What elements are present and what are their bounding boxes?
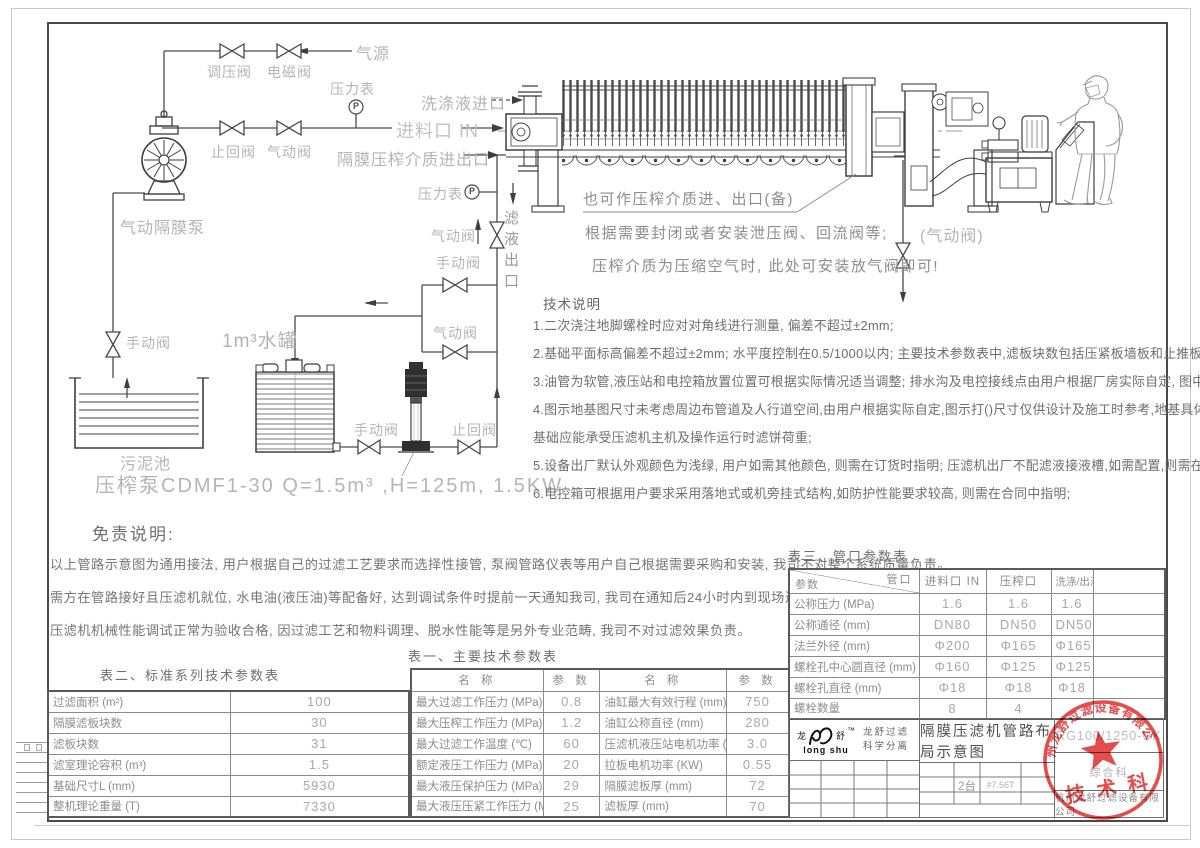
- brand-line1: 龙舒过滤: [863, 726, 909, 740]
- check-valve-bottom-icon: [458, 440, 480, 454]
- table-row: 公称通径 (mm)DN80DN50DN50: [789, 614, 1165, 635]
- tech-note-line: 5.设备出厂默认外观颜色为浅绿, 用户如需其他颜色, 则需在订货时指明; 压滤机…: [533, 452, 1178, 480]
- pneumatic-valve1-label: 气动阀: [267, 142, 312, 162]
- pressure-gauge2-label: 压力表: [418, 184, 463, 204]
- manual-valve-branch-label: 手动阀: [436, 253, 481, 273]
- table3-header: 压榨口: [986, 569, 1051, 593]
- company-logo: 龙 舒 ™ long shu: [797, 725, 855, 755]
- regulator-valve-icon: [220, 44, 244, 58]
- table3-header: 进料口 IN: [919, 569, 986, 593]
- water-tank-label: 1m³水罐: [222, 326, 298, 353]
- disclaimer-line: 以上管路示意图为通用接法, 用户根据自己的过滤工艺要求而选择性接管, 泵阀管路仪…: [50, 548, 790, 581]
- disclaimer-line: 压滤机机械性能调试正常为验收合格, 因过滤工艺和物料调理、脱水性能等是另外专业范…: [50, 614, 790, 647]
- diaphragm-pump-label: 气动隔膜泵: [120, 214, 205, 238]
- solenoid-valve-icon: [277, 44, 301, 58]
- pneumatic-valve-right-label: (气动阀): [920, 222, 984, 246]
- table-row: 滤室理论容积 (m³)1.5: [48, 754, 409, 775]
- stamp-center-text: 技 术 科: [1064, 769, 1153, 808]
- pressure-gauge1-label: 压力表: [330, 79, 375, 99]
- quantity-value: 2台: [954, 778, 980, 794]
- logo-trademark: ™: [847, 726, 855, 735]
- tech-notes: 1.二次浇注地脚螺栓时应对对角线进行测量, 偏差不超过±2mm;2.基础平面标高…: [533, 312, 1178, 508]
- table3-header: [1093, 569, 1165, 593]
- table-row: 公称压力 (MPa)1.61.61.6: [789, 593, 1165, 614]
- table1-header: 名 称: [600, 669, 727, 691]
- tech-note-line: 4.图示地基图尺寸未考虑周边布管道及人行道空间,由用户根据实际自定,图示打()尺…: [533, 396, 1178, 424]
- water-tank-icon: [256, 360, 340, 452]
- callout-alt-port: 也可作压榨介质进、出口(备): [583, 188, 794, 209]
- feed-inlet-label: 进料口 IN: [396, 117, 479, 143]
- table3-corner-cell: 管口 参数: [789, 569, 919, 593]
- table-row: 最大过滤工作温度 (℃)60压滤机液压站电机功率 (KW)3.0: [411, 733, 789, 754]
- table-row: 螺栓孔中心圆直径 (mm)Φ160Φ125Φ125: [789, 656, 1165, 677]
- logo-glyph-icon: [808, 725, 834, 747]
- table-row: 基础尺寸L (mm)5930: [48, 775, 409, 796]
- check-valve1-label: 止回阀: [211, 142, 256, 162]
- corner-top-label: 管口: [887, 571, 913, 587]
- table2-title: 表二、标准系列技术参数表: [100, 665, 280, 684]
- gauge-p-symbol: P: [465, 186, 479, 196]
- table-row: 最大过滤工作压力 (MPa)0.8油缸最大有效行程 (mm)750: [411, 691, 789, 712]
- main-params-table: 名 称 参 数 名 称 参 数 最大过滤工作压力 (MPa)0.8油缸最大有效行…: [410, 668, 790, 818]
- table-row: 最大液压压紧工作压力 (MPa)25滤板厚 (mm)70: [411, 796, 789, 817]
- tech-note-line: 基础应能承受压滤机主机及操作运行时滤饼荷重;: [533, 424, 1178, 452]
- membrane-port-label: 隔膜压榨介质进出口: [337, 146, 490, 170]
- table-row: 最大液压保护压力 (MPa)29隔膜滤板厚 (mm)72: [411, 775, 789, 796]
- press-pump-icon: [398, 362, 434, 476]
- filtrate-outlet-label: 滤液出口: [500, 210, 521, 310]
- logo-english: long shu: [797, 745, 855, 755]
- tech-note-line: 1.二次浇注地脚螺栓时应对对角线进行测量, 偏差不超过±2mm;: [533, 312, 1178, 340]
- regulator-valve-label: 调压阀: [207, 62, 252, 82]
- table-row: 滤板块数31: [48, 733, 409, 754]
- pneumatic-valve-icon: [277, 121, 301, 135]
- gauge-p-symbol: P: [349, 101, 363, 111]
- logo-cn-left: 龙: [797, 729, 806, 742]
- table-row: 隔膜滤板块数30: [48, 712, 409, 733]
- stamp-star-icon: [1078, 727, 1124, 771]
- pneumatic-valve-branch-label: 气动阀: [433, 323, 478, 343]
- tech-note-line: 3.油管为软管,液压站和电控箱放置位置可根据实际情况适当调整; 排水沟及电控接线…: [533, 368, 1178, 396]
- table3-title: 表三、管口参数表: [788, 546, 908, 565]
- diaphragm-pump-icon: [142, 111, 186, 200]
- pneumatic-valve2-label: 气动阀: [431, 226, 476, 246]
- revision-grid: [788, 760, 920, 818]
- manual-valve-pool-label: 手动阀: [126, 333, 171, 353]
- disclaimer-line: 需方在管路接好且压滤机就位, 水电油(液压油)等配备好, 达到调试条件时提前一天…: [50, 581, 790, 614]
- table-row: 整机理论重量 (T)7330: [48, 796, 409, 817]
- table1-title: 表一、主要技术参数表: [408, 646, 558, 665]
- weight-value: #7.56T: [980, 780, 1021, 790]
- engineering-drawing-page: { "piping": { "gauge_letter": "P", "air_…: [0, 0, 1200, 848]
- table3-header: 洗涤/出液口: [1051, 569, 1093, 593]
- solenoid-valve-label: 电磁阀: [267, 62, 312, 82]
- sludge-pool-icon: [69, 378, 209, 448]
- table1-header: 名 称: [411, 669, 543, 691]
- air-source-label: 气源: [356, 40, 390, 64]
- check-valve-icon: [220, 121, 244, 135]
- company-stamp: 杭州龙舒过滤设备有限公司 技 术 科: [1030, 694, 1176, 834]
- manual-valve-branch-icon: [443, 278, 467, 292]
- wash-inlet-label: 洗涤液进口: [421, 90, 506, 114]
- disclaimer: 以上管路示意图为通用接法, 用户根据自己的过滤工艺要求而选择性接管, 泵阀管路仪…: [50, 548, 790, 647]
- brand-line2: 科学分离: [863, 740, 909, 754]
- table1-header: 参 数: [727, 669, 789, 691]
- manual-valve-pool-icon: [106, 332, 120, 357]
- table-row: 额定液压工作压力 (MPa)20拉板电机功率 (KW)0.55: [411, 754, 789, 775]
- standard-series-table: 过滤面积 (m²)100 隔膜滤板块数30 滤板块数31 滤室理论容积 (m³)…: [47, 690, 410, 818]
- press-pump-spec: 压榨泵CDMF1-30 Q=1.5m³ ,H=125m, 1.5KW: [95, 469, 563, 498]
- table-row: 过滤面积 (m²)100: [48, 691, 409, 712]
- check-valve-bottom-label: 止回阀: [452, 420, 497, 440]
- callout-relief-valve: 根据需要封闭或者安装泄压阀、回流阀等;: [585, 222, 888, 243]
- brand-slogan: 龙舒过滤 科学分离: [863, 726, 909, 754]
- corner-bottom-label: 参数: [795, 576, 819, 592]
- tech-note-line: 2.基础平面标高偏差不超过±2mm; 水平度控制在0.5/1000以内; 主要技…: [533, 340, 1178, 368]
- pneumatic-valve-branch-icon: [443, 345, 467, 359]
- table1-header: 参 数: [543, 669, 600, 691]
- manual-valve-tank-icon: [358, 440, 380, 454]
- logo-cell: 龙 舒 ™ long shu 龙舒过滤 科学分离: [788, 718, 920, 761]
- table-row: 最大压榨工作压力 (MPa)1.2油缸公称直径 (mm)280: [411, 712, 789, 733]
- manual-valve-tank-label: 手动阀: [354, 420, 399, 440]
- tech-notes-title: 技术说明: [543, 293, 601, 313]
- disclaimer-title: 免责说明:: [92, 520, 175, 545]
- tech-note-line: 6.电控箱可根据用户要求采用落地式或机旁挂式结构,如防护性能要求较高, 则需在合…: [533, 480, 1178, 508]
- logo-cn-right: 舒: [836, 729, 845, 742]
- table-row: 法兰外径 (mm)Φ200Φ165Φ165: [789, 635, 1165, 656]
- callout-air-vent: 压榨介质为压缩空气时, 此处可安装放气阀即可!: [592, 255, 939, 276]
